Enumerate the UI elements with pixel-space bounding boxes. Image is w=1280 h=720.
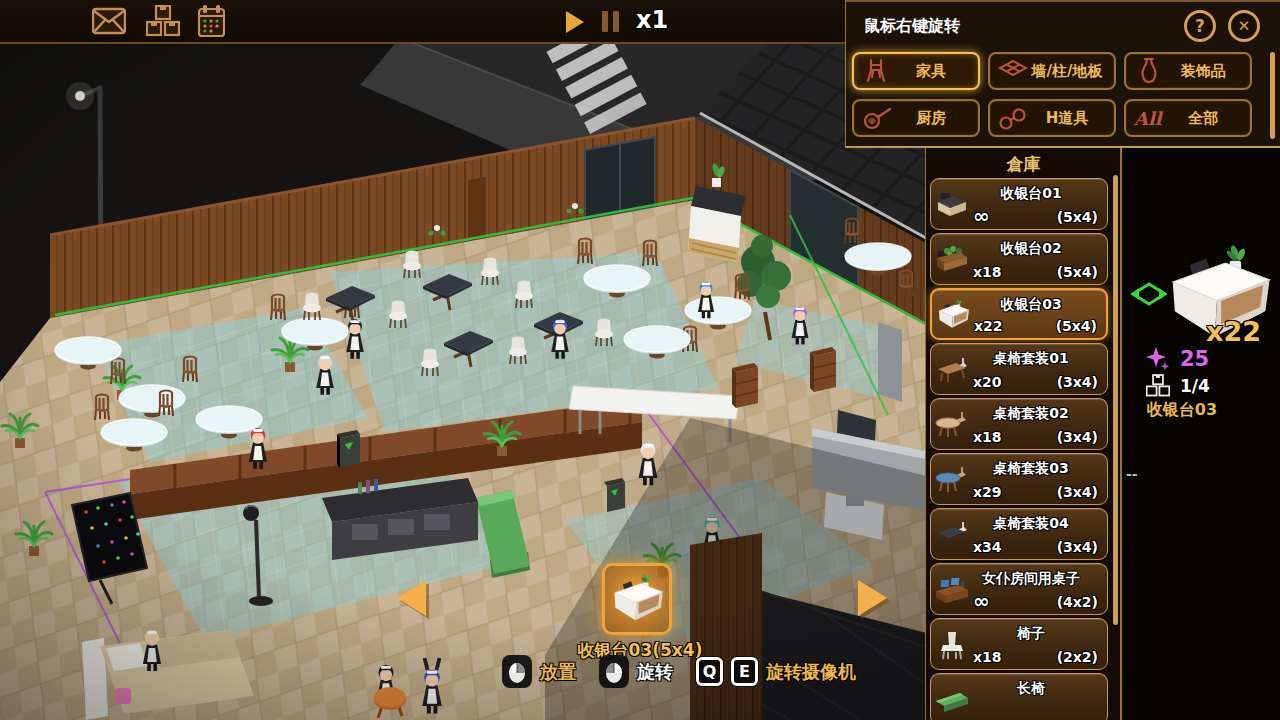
- mail-icon[interactable]: [92, 7, 126, 35]
- category-button-chair[interactable]: 家具: [852, 52, 980, 90]
- item-icon: [934, 683, 970, 719]
- hotkey-label: 旋转摄像机: [766, 660, 856, 684]
- hotkey-label: 旋转: [637, 660, 673, 684]
- item-icon: [934, 408, 970, 444]
- close-icon[interactable]: ✕: [1228, 10, 1260, 42]
- warehouse-list: 收银台01∞(5x4)收银台02x18(5x4)收银台03x22(5x4)桌椅套…: [930, 178, 1108, 720]
- tiles-icon: [996, 59, 1030, 83]
- item-count: x34: [973, 539, 1002, 555]
- item-icon: [934, 353, 970, 389]
- item-count: x22: [974, 318, 1003, 334]
- category-label: H道具: [1030, 109, 1104, 128]
- item-size: (3x4): [1057, 429, 1098, 445]
- progress-row: 1/4: [1146, 374, 1210, 398]
- play-icon[interactable]: [565, 10, 585, 34]
- category-button-all[interactable]: All全部: [1124, 99, 1252, 137]
- item-name: 桌椅套装04: [961, 514, 1101, 532]
- item-count: x18: [973, 429, 1002, 445]
- category-label: 家具: [894, 62, 968, 81]
- item-size: (5x4): [1057, 209, 1098, 225]
- item-size: (3x4): [1057, 484, 1098, 500]
- mouse-left-icon: [502, 655, 532, 688]
- category-label: 全部: [1166, 109, 1240, 128]
- item-size: (4x2): [1057, 594, 1098, 610]
- game-screen: x1 鼠标右键旋转 ? ✕ 家具墙/柱/地板装饰品厨房H道具All全部 倉庫 收…: [0, 0, 1280, 720]
- gem-cost-row: 25: [1146, 346, 1209, 372]
- category-button-cuffs[interactable]: H道具: [988, 99, 1116, 137]
- item-icon: [934, 628, 970, 664]
- item-icon: [934, 188, 970, 224]
- svg-text:All: All: [1133, 108, 1164, 129]
- warehouse-item-桌椅套装02[interactable]: 桌椅套装02x18(3x4): [930, 398, 1108, 450]
- item-icon: [935, 299, 971, 334]
- item-name: 收银台01: [961, 184, 1101, 202]
- warehouse-item-桌椅套装04[interactable]: 桌椅套装04x34(3x4): [930, 508, 1108, 560]
- item-count: x29: [973, 484, 1002, 500]
- speed-multiplier[interactable]: x1: [636, 6, 668, 34]
- item-icon: [934, 463, 970, 499]
- item-size: (5x4): [1057, 264, 1098, 280]
- item-count: x18: [973, 264, 1002, 280]
- detail-placeholder: --: [1126, 466, 1138, 482]
- vase-icon: [1132, 57, 1166, 85]
- warehouse-item-女仆房间用桌子[interactable]: 女仆房间用桌子∞(4x2): [930, 563, 1108, 615]
- mouse-right-icon: [599, 655, 629, 688]
- build-panel: 鼠标右键旋转 ? ✕ 家具墙/柱/地板装饰品厨房H道具All全部: [845, 0, 1280, 148]
- keycap-E: E: [731, 657, 758, 686]
- item-count: x20: [973, 374, 1002, 390]
- gem-cost: 25: [1180, 347, 1209, 371]
- item-size: (3x4): [1057, 374, 1098, 390]
- category-label: 墙/柱/地板: [1030, 62, 1104, 81]
- item-icon: [934, 518, 970, 554]
- cuffs-icon: [996, 104, 1030, 132]
- warehouse-title: 倉庫: [926, 148, 1121, 176]
- chair-icon: [860, 57, 894, 85]
- item-name: 收银台03: [962, 295, 1100, 313]
- selected-item-icon: [608, 574, 666, 624]
- detail-item-name: 收银台03: [1122, 400, 1242, 421]
- hotkey-旋转摄像机: QE旋转摄像机: [696, 657, 856, 686]
- item-count: ∞: [973, 594, 990, 610]
- item-name: 桌椅套装01: [961, 349, 1101, 367]
- selected-item-card[interactable]: [602, 563, 672, 635]
- item-icon: [934, 243, 970, 279]
- category-button-vase[interactable]: 装饰品: [1124, 52, 1252, 90]
- all-icon: All: [1132, 104, 1166, 132]
- item-name: 长椅: [961, 679, 1101, 697]
- item-size: (2x2): [1057, 649, 1098, 665]
- progress-count: 1/4: [1180, 376, 1210, 396]
- owned-count: x22: [1206, 316, 1261, 347]
- warehouse-item-长椅[interactable]: 长椅: [930, 673, 1108, 720]
- warehouse-item-收银台02[interactable]: 收银台02x18(5x4): [930, 233, 1108, 285]
- item-size: (5x4): [1056, 318, 1097, 334]
- item-name: 椅子: [961, 624, 1101, 642]
- item-name: 女仆房间用桌子: [961, 569, 1101, 587]
- item-count: ∞: [973, 209, 990, 225]
- warehouse-item-收银台03[interactable]: 收银台03x22(5x4): [930, 288, 1108, 340]
- hotkey-旋转: 旋转: [599, 655, 673, 688]
- pause-icon[interactable]: [602, 11, 619, 32]
- pan-icon: [860, 105, 894, 131]
- warehouse-item-椅子[interactable]: 椅子x18(2x2): [930, 618, 1108, 670]
- category-button-tiles[interactable]: 墙/柱/地板: [988, 52, 1116, 90]
- prev-item-arrow[interactable]: [394, 578, 428, 618]
- hotkey-bar: 放置旋转QE旋转摄像机: [488, 655, 856, 688]
- category-label: 装饰品: [1166, 62, 1240, 81]
- calendar-icon[interactable]: [198, 4, 225, 38]
- hotkey-放置: 放置: [502, 655, 576, 688]
- panel-scrollbar[interactable]: [1270, 52, 1275, 139]
- warehouse-item-收银台01[interactable]: 收银台01∞(5x4): [930, 178, 1108, 230]
- panel-hint: 鼠标右键旋转: [864, 16, 960, 37]
- sparkle-icon: [1146, 346, 1170, 372]
- next-item-arrow[interactable]: [856, 578, 890, 618]
- warehouse-scrollbar[interactable]: [1113, 175, 1118, 625]
- item-icon: [934, 573, 970, 609]
- item-detail-panel: x22 25 1/4 收银台03 --: [1122, 148, 1280, 720]
- help-button[interactable]: ?: [1184, 10, 1216, 42]
- category-label: 厨房: [894, 109, 968, 128]
- item-count: x18: [973, 649, 1002, 665]
- storage-progress-icon: [1146, 374, 1170, 398]
- warehouse-item-桌椅套装03[interactable]: 桌椅套装03x29(3x4): [930, 453, 1108, 505]
- item-name: 收银台02: [961, 239, 1101, 257]
- item-name: 桌椅套装02: [961, 404, 1101, 422]
- hotkey-label: 放置: [540, 660, 576, 684]
- warehouse-panel: 倉庫 收银台01∞(5x4)收银台02x18(5x4)收银台03x22(5x4)…: [925, 148, 1121, 720]
- category-button-pan[interactable]: 厨房: [852, 99, 980, 137]
- panel-divider: [1120, 148, 1122, 720]
- keycap-Q: Q: [696, 657, 723, 686]
- warehouse-item-桌椅套装01[interactable]: 桌椅套装01x20(3x4): [930, 343, 1108, 395]
- storage-icon[interactable]: [146, 5, 180, 38]
- item-size: (3x4): [1057, 539, 1098, 555]
- category-grid: 家具墙/柱/地板装饰品厨房H道具All全部: [852, 52, 1264, 137]
- item-name: 桌椅套装03: [961, 459, 1101, 477]
